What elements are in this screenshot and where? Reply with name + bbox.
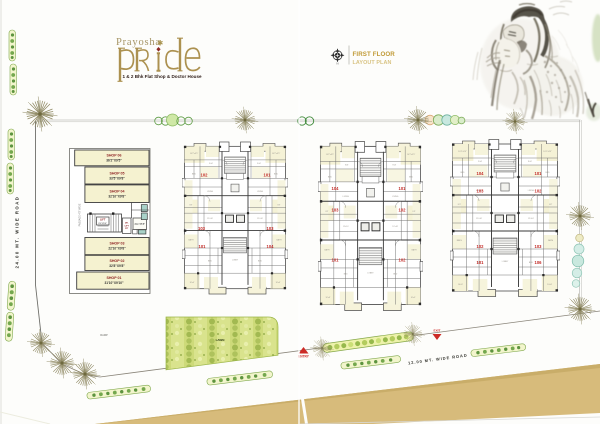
svg-text:102: 102 — [399, 258, 407, 263]
svg-text:102: 102 — [399, 208, 407, 213]
svg-text:8'0"X5'6": 8'0"X5'6" — [98, 223, 107, 225]
svg-text:36'2"X9'5": 36'2"X9'5" — [106, 159, 122, 163]
svg-text:101: 101 — [535, 171, 543, 176]
svg-text:SHOP 05: SHOP 05 — [109, 171, 124, 175]
svg-text:PASSAGE 4'0" WIDE: PASSAGE 4'0" WIDE — [79, 203, 82, 226]
svg-text:104: 104 — [332, 186, 340, 191]
svg-text:103: 103 — [477, 189, 485, 194]
svg-text:101: 101 — [332, 258, 340, 263]
svg-text:SHOP 06: SHOP 06 — [106, 154, 121, 158]
svg-text:SHOP 02: SHOP 02 — [109, 259, 124, 263]
svg-text:101: 101 — [264, 173, 272, 178]
svg-text:4'11"X5'5": 4'11"X5'5" — [134, 223, 145, 226]
svg-text:101: 101 — [399, 186, 407, 191]
svg-text:102: 102 — [535, 189, 543, 194]
svg-text:FIRST FLOOR: FIRST FLOOR — [353, 51, 396, 58]
svg-text:SHOP 03: SHOP 03 — [109, 242, 124, 246]
svg-text:SHOP 01: SHOP 01 — [106, 276, 121, 280]
svg-text:33'5"X9'8": 33'5"X9'8" — [109, 176, 125, 180]
svg-text:104: 104 — [267, 244, 275, 249]
svg-text:103: 103 — [267, 226, 275, 231]
svg-text:LIFT: LIFT — [100, 218, 106, 222]
svg-text:ENTRY: ENTRY — [298, 355, 310, 359]
svg-text:32'10"X9'8": 32'10"X9'8" — [108, 194, 126, 198]
svg-text:Prayosha: Prayosha — [116, 37, 161, 48]
svg-text:RAMP: RAMP — [100, 333, 108, 337]
svg-text:EXIT: EXIT — [434, 329, 441, 333]
svg-text:✱: ✱ — [157, 39, 164, 48]
svg-text:1 & 2 Bhk Flat Shop & Doctor H: 1 & 2 Bhk Flat Shop & Doctor House — [122, 74, 202, 79]
svg-text:106: 106 — [535, 260, 543, 265]
svg-text:32'8"X9'8": 32'8"X9'8" — [109, 264, 125, 268]
svg-text:101: 101 — [199, 244, 207, 249]
svg-text:22'10"X9'8": 22'10"X9'8" — [108, 247, 126, 251]
svg-text:N: N — [336, 62, 338, 66]
svg-text:103: 103 — [535, 244, 543, 249]
svg-text:103: 103 — [198, 226, 206, 231]
svg-text:24.00 MT. WIDE ROAD: 24.00 MT. WIDE ROAD — [15, 196, 20, 269]
svg-text:SHOP 04: SHOP 04 — [109, 189, 124, 193]
svg-text:DR.: DR. — [125, 223, 129, 225]
svg-text:102: 102 — [201, 173, 209, 178]
svg-text:103: 103 — [332, 208, 340, 213]
svg-text:LAWN: LAWN — [216, 338, 225, 342]
svg-text:102: 102 — [477, 244, 485, 249]
svg-text:104: 104 — [477, 171, 485, 176]
svg-text:101: 101 — [477, 260, 485, 265]
svg-text:31'10"X9'10": 31'10"X9'10" — [104, 281, 124, 285]
svg-text:LAYOUT PLAN: LAYOUT PLAN — [353, 60, 392, 66]
